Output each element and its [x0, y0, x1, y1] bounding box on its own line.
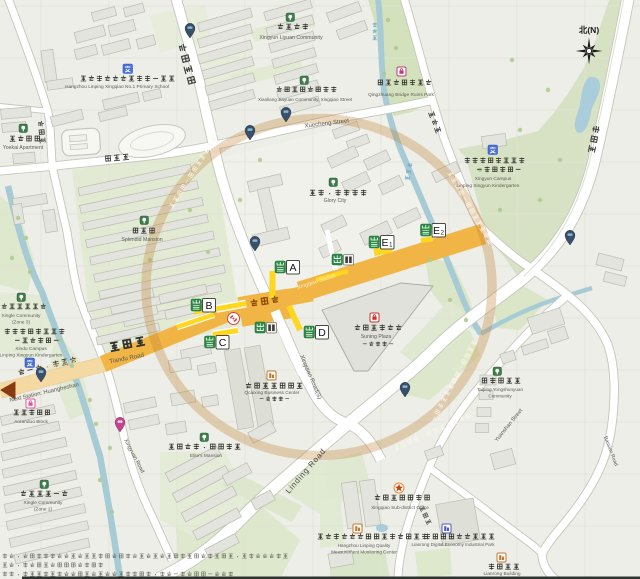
svg-text:Xingle Community: Xingle Community: [24, 500, 64, 506]
svg-text:Hangzhou Linping Quality: Hangzhou Linping Quality: [338, 543, 391, 548]
svg-text:Lianrong Building: Lianrong Building: [483, 571, 520, 577]
svg-text:Xingyun Liyuan Community: Xingyun Liyuan Community: [259, 35, 323, 41]
svg-text:Hangzhou Linping Xingqiao N: Hangzhou Linping Xingqiao No.1 Primary S…: [65, 84, 169, 90]
svg-text:Qingzhuang Bridge Ruins Par: Qingzhuang Bridge Ruins Park: [368, 92, 434, 98]
svg-text:Community: Community: [488, 394, 512, 399]
svg-text:北(N): 北(N): [579, 25, 599, 35]
svg-text:Splendid Mansion: Splendid Mansion: [121, 237, 162, 243]
svg-text:E: E: [382, 237, 389, 249]
svg-text:Linping Xingyun Kindergarten: Linping Xingyun Kindergarten: [0, 353, 63, 359]
svg-text:C: C: [219, 337, 227, 349]
svg-text:Xiaoliang Jiayuan Community,: Xiaoliang Jiayuan Community, Xingqiao St…: [258, 97, 353, 102]
svg-text:B: B: [205, 300, 212, 312]
svg-text:Xindu Campus: Xindu Campus: [15, 346, 47, 352]
svg-text:Suning Plaza: Suning Plaza: [361, 334, 392, 340]
svg-text:Glory City: Glory City: [324, 198, 347, 204]
svg-text:D: D: [318, 327, 326, 339]
svg-text:Linping Xingyun Kindergarten: Linping Xingyun Kindergarten: [457, 183, 520, 189]
svg-text:Lianrong Digital Economy In: Lianrong Digital Economy Industrial Park: [412, 542, 496, 547]
svg-text:E: E: [433, 225, 440, 237]
svg-text:Aoranduo Block: Aoranduo Block: [14, 419, 48, 425]
svg-text:Elite's Mansion: Elite's Mansion: [190, 453, 222, 459]
svg-text:Yoekai Apartment: Yoekai Apartment: [3, 145, 44, 151]
svg-text:A: A: [289, 262, 296, 274]
svg-text:Xingle Community: Xingle Community: [2, 313, 42, 319]
svg-text:Xingyun Campus: Xingyun Campus: [475, 176, 512, 182]
svg-text:(Zone 1): (Zone 1): [34, 507, 53, 513]
svg-text:Taiping Yongshunyuan: Taiping Yongshunyuan: [477, 387, 523, 392]
svg-text:(Zone 3): (Zone 3): [12, 320, 31, 326]
svg-text:Measurement Monitoring Cente: Measurement Monitoring Center: [331, 550, 397, 555]
svg-text:Qcaixing Business Center: Qcaixing Business Center: [244, 390, 300, 396]
svg-text:Xingqiao Sub-district Office: Xingqiao Sub-district Office: [371, 505, 429, 511]
